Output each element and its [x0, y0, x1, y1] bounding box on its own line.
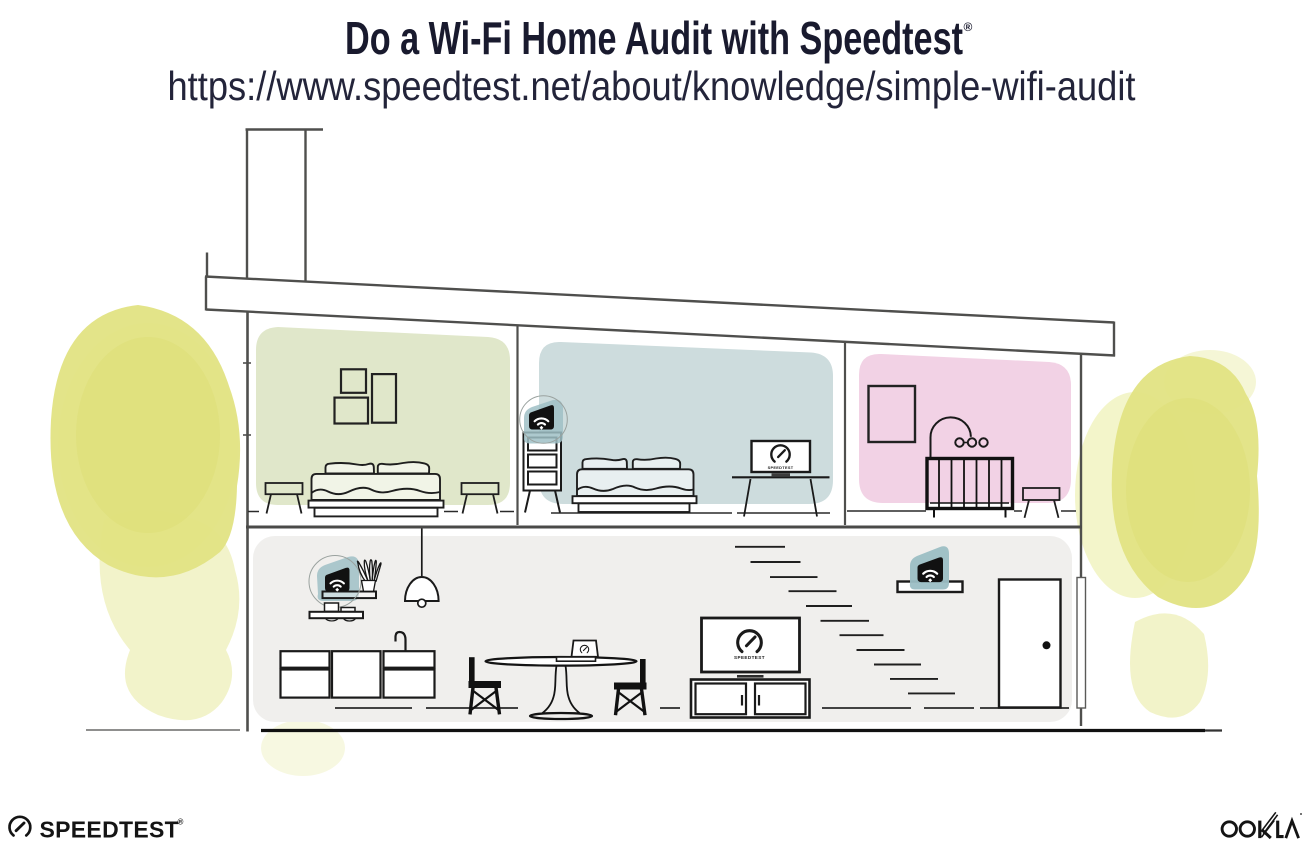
- svg-text:Do a Wi-Fi Home Audit with Spe: Do a Wi-Fi Home Audit with Speedtest: [345, 12, 963, 64]
- svg-text:SPEEDTEST: SPEEDTEST: [734, 655, 765, 660]
- svg-text:https://www.speedtest.net/abou: https://www.speedtest.net/about/knowledg…: [168, 63, 1137, 109]
- svg-text:SPEEDTEST: SPEEDTEST: [768, 465, 794, 470]
- svg-text:®: ®: [964, 20, 973, 34]
- svg-text:®: ®: [178, 818, 184, 827]
- svg-text:SPEEDTEST: SPEEDTEST: [40, 816, 179, 842]
